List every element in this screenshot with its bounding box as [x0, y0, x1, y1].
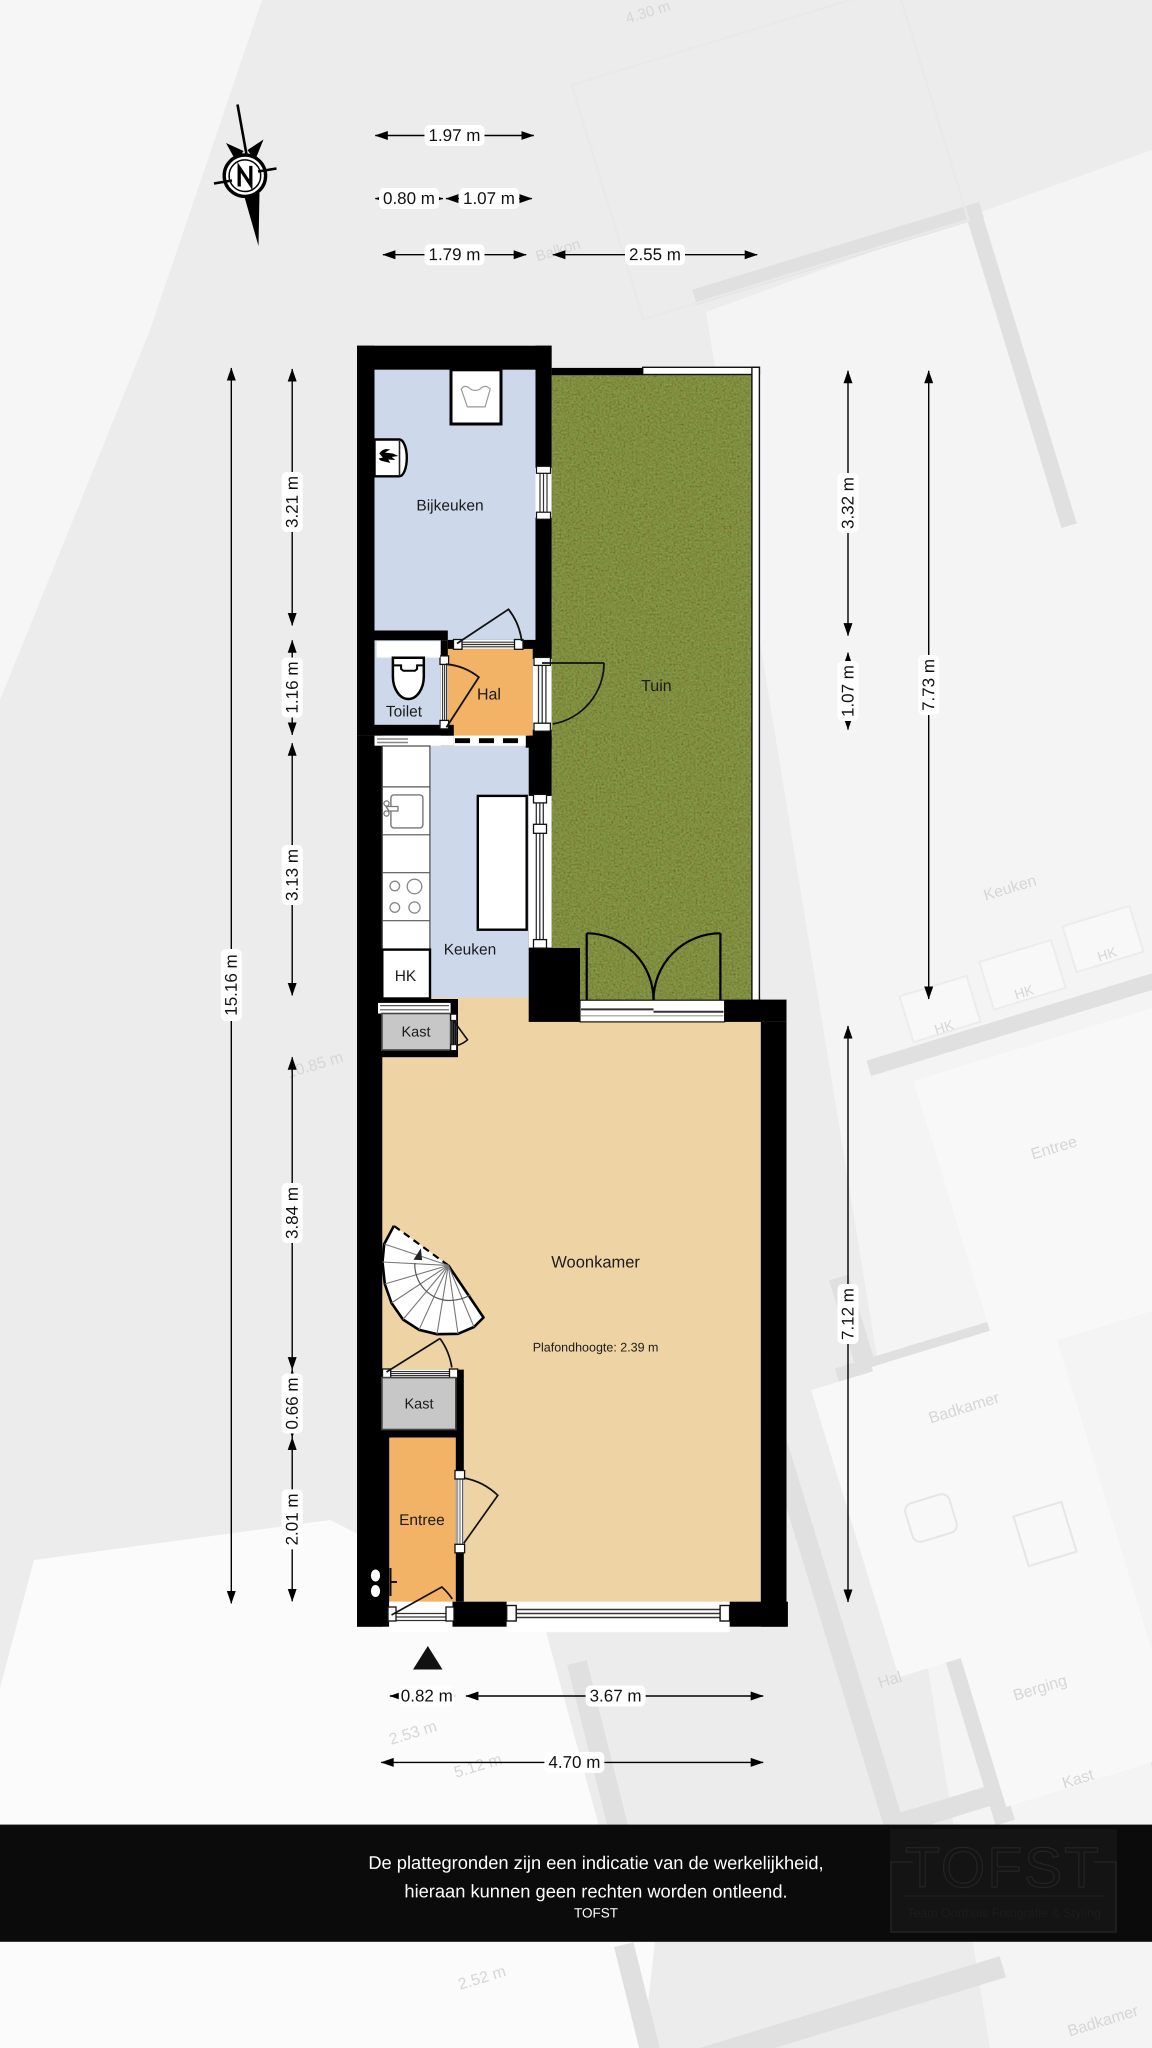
svg-text:7.12 m: 7.12 m: [838, 1288, 857, 1340]
svg-text:2.01 m: 2.01 m: [283, 1493, 302, 1545]
svg-text:3.67 m: 3.67 m: [590, 1686, 642, 1705]
svg-text:Hal: Hal: [477, 686, 501, 703]
svg-text:0.80 m: 0.80 m: [383, 189, 435, 208]
svg-text:Kast: Kast: [404, 1396, 433, 1412]
svg-text:3.13 m: 3.13 m: [283, 849, 302, 901]
svg-text:TOFST: TOFST: [905, 1836, 1101, 1900]
svg-text:1.97 m: 1.97 m: [429, 126, 481, 145]
svg-text:Kast: Kast: [401, 1024, 430, 1040]
svg-text:1.07 m: 1.07 m: [463, 189, 515, 208]
svg-text:0.66 m: 0.66 m: [283, 1377, 302, 1429]
svg-text:Toilet: Toilet: [386, 703, 423, 720]
svg-text:2.55 m: 2.55 m: [629, 245, 681, 264]
svg-text:3.21 m: 3.21 m: [283, 476, 302, 528]
svg-text:1.16 m: 1.16 m: [283, 661, 302, 713]
svg-text:Team Oorthuis Fotografie & Sty: Team Oorthuis Fotografie & Styling: [907, 1906, 1101, 1920]
svg-text:Woonkamer: Woonkamer: [551, 1253, 640, 1271]
svg-text:0.82 m: 0.82 m: [401, 1686, 453, 1705]
svg-text:Tuin: Tuin: [641, 678, 672, 695]
svg-text:3.84 m: 3.84 m: [283, 1187, 302, 1239]
svg-text:TOFST: TOFST: [574, 1905, 618, 1920]
svg-text:3.32 m: 3.32 m: [838, 477, 857, 529]
svg-text:4.70 m: 4.70 m: [548, 1753, 600, 1772]
svg-text:Plafondhoogte: 2.39 m: Plafondhoogte: 2.39 m: [533, 1340, 659, 1354]
svg-text:7.73 m: 7.73 m: [919, 659, 938, 711]
svg-text:De plattegronden zijn een indi: De plattegronden zijn een indicatie van …: [368, 1852, 823, 1873]
svg-text:1.79 m: 1.79 m: [429, 245, 481, 264]
svg-text:hieraan kunnen geen rechten wo: hieraan kunnen geen rechten worden ontle…: [404, 1880, 787, 1901]
svg-text:Keuken: Keuken: [444, 941, 497, 958]
svg-text:Bijkeuken: Bijkeuken: [416, 497, 483, 514]
svg-text:15.16 m: 15.16 m: [222, 954, 241, 1015]
svg-text:1.07 m: 1.07 m: [838, 665, 857, 717]
svg-text:Entree: Entree: [399, 1512, 445, 1529]
svg-text:HK: HK: [395, 968, 417, 985]
